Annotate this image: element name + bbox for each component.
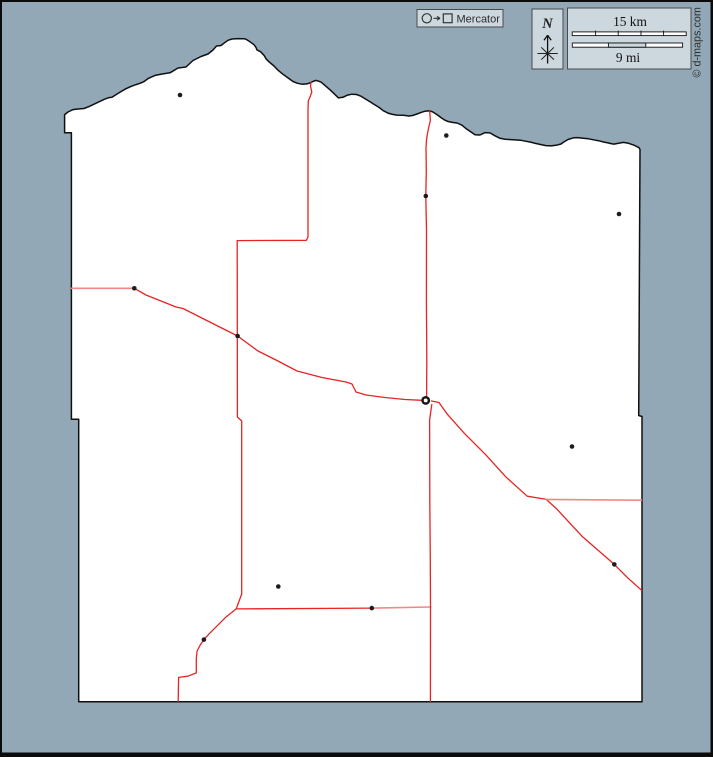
svg-text:9 mi: 9 mi [616, 50, 640, 65]
svg-text:15 km: 15 km [613, 14, 647, 29]
svg-text:© d-maps.com: © d-maps.com [692, 7, 704, 77]
svg-text:N: N [541, 16, 553, 32]
svg-text:Mercator: Mercator [457, 13, 501, 25]
